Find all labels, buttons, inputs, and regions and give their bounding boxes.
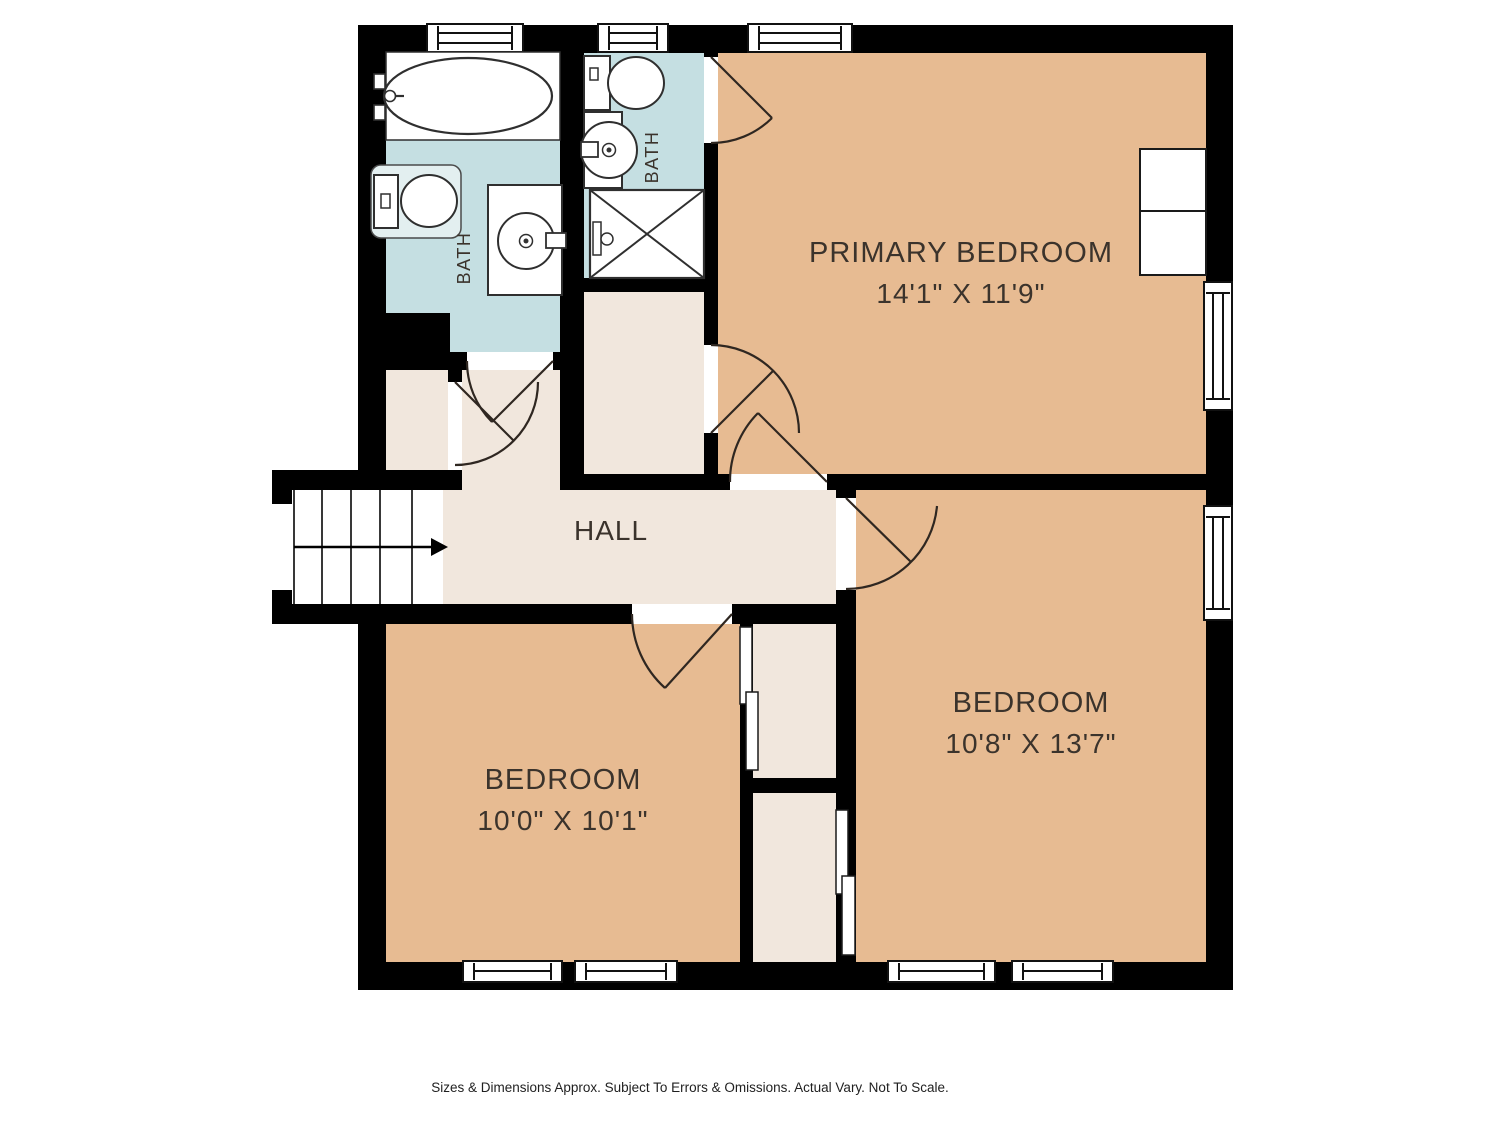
- window-bedroom-right-side: [1204, 506, 1232, 620]
- vanity-main-icon: [488, 185, 566, 295]
- hall-corridor-floor: [443, 490, 836, 604]
- opening-bath-ensuite: [704, 57, 718, 143]
- primary-vestibule-floor: [584, 292, 704, 474]
- primary-bedroom-dims: 14'1" X 11'9": [876, 278, 1045, 309]
- wall-between-closets: [740, 778, 836, 793]
- bathtub-icon: [384, 58, 552, 134]
- bedroom-right-dims: 10'8" X 13'7": [945, 728, 1116, 759]
- opening-bath-main: [467, 352, 553, 370]
- window-primary-right: [1204, 282, 1232, 410]
- window-bath-ensuite: [598, 24, 668, 52]
- window-primary-top: [748, 24, 852, 52]
- bath-main-label: BATH: [454, 232, 474, 285]
- bedroom-right-label: BEDROOM: [953, 687, 1110, 719]
- floor-plan-svg: PRIMARY BEDROOM 14'1" X 11'9" BEDROOM 10…: [0, 0, 1500, 1125]
- shower-icon: [590, 190, 704, 278]
- bath-vestibule-floor: [462, 370, 560, 490]
- wall-primary-bottom: [560, 474, 1206, 490]
- closet-top-floor: [753, 624, 836, 778]
- primary-bedroom-label: PRIMARY BEDROOM: [809, 237, 1113, 269]
- bedroom-left-label: BEDROOM: [485, 764, 642, 796]
- floor-plan-page: PRIMARY BEDROOM 14'1" X 11'9" BEDROOM 10…: [0, 0, 1500, 1125]
- opening-hall-closet: [448, 382, 462, 465]
- wall-exterior-left-lower: [358, 624, 386, 990]
- wall-stair-stub-top: [272, 490, 292, 504]
- opening-primary-vestibule: [704, 345, 718, 433]
- hall-label: HALL: [574, 515, 648, 546]
- primary-closet-shelves: [1140, 149, 1206, 275]
- wall-exterior-left-upper: [358, 25, 386, 470]
- wall-between-baths: [560, 52, 584, 474]
- wall-shower-bottom: [560, 278, 706, 292]
- opening-bedroom-right: [836, 498, 856, 590]
- wall-stair-stub-bottom: [272, 590, 292, 604]
- window-bath-main: [427, 24, 523, 52]
- bedroom-left-dims: 10'0" X 10'1": [477, 805, 648, 836]
- opening-primary-bedroom: [730, 474, 827, 490]
- wall-closet-stub: [448, 370, 462, 382]
- opening-bedroom-left: [632, 604, 732, 624]
- toilet-main-icon: [374, 175, 457, 228]
- disclaimer-text: Sizes & Dimensions Approx. Subject To Er…: [431, 1080, 948, 1095]
- wall-bath-main-notch: [386, 313, 450, 370]
- toilet-ensuite-icon: [584, 56, 664, 110]
- hall-closet-floor: [386, 370, 448, 470]
- closet-bottom-floor: [753, 793, 836, 962]
- wall-stair-bottom: [272, 604, 443, 624]
- bath-ensuite-label: BATH: [642, 131, 662, 184]
- wall-stair-top: [272, 470, 462, 490]
